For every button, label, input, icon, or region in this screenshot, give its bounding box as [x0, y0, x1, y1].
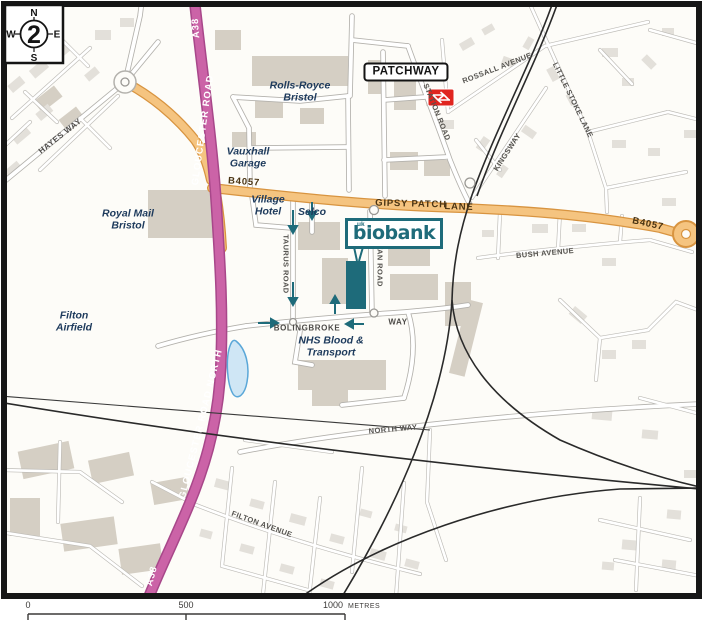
scale-bar: 0 500 1000 METRES	[25, 600, 380, 620]
national-rail-icon	[428, 89, 454, 106]
compass-east: E	[54, 30, 61, 41]
roundabout-west	[114, 71, 136, 93]
compass-number: 2	[27, 21, 41, 49]
compass-north: N	[30, 8, 37, 19]
map-page: N W E S 2 0 500 1000 METRES A38 GLOUCEST…	[0, 0, 703, 627]
map-canvas: N W E S 2 0 500 1000 METRES	[0, 0, 703, 627]
biobank-building	[346, 261, 366, 309]
scale-unit: METRES	[348, 603, 380, 610]
scale-zero: 0	[25, 600, 30, 610]
compass-west: W	[6, 30, 16, 41]
compass-rose: N W E S 2	[5, 5, 63, 64]
compass-south: S	[31, 53, 38, 64]
scale-mid: 500	[178, 600, 193, 610]
scale-end: 1000	[323, 600, 343, 610]
